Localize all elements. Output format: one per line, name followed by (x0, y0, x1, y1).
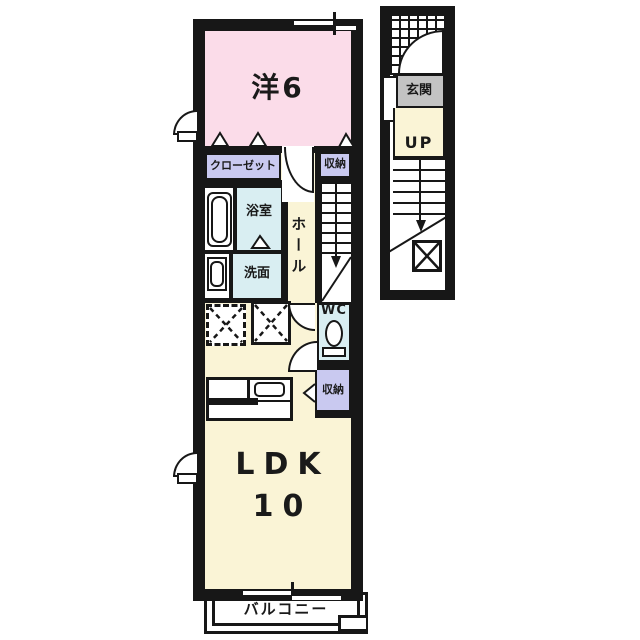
bathroom-label: 浴室 (236, 205, 282, 220)
wc-label: WC (317, 304, 351, 319)
toilet-icon (325, 320, 343, 347)
refrigerator-space-icon (251, 301, 291, 345)
window-bottom-pane-left (243, 591, 292, 595)
entrance: 玄関 (393, 74, 445, 108)
toilet-base (322, 347, 346, 357)
closet-label: クローゼット (210, 159, 276, 172)
stairs-internal-rail (335, 182, 337, 258)
entrance-label: 玄関 (406, 83, 432, 98)
storage-upper-label: 収納 (324, 157, 346, 170)
storage-upper: 収納 (319, 152, 351, 178)
closet: クローゼット (205, 153, 281, 180)
bathtub-inner (211, 196, 228, 243)
balcony-label: バルコニー (205, 601, 367, 618)
washroom-label: 洗面 (233, 267, 281, 282)
window-bottom-tick (291, 582, 294, 596)
window-swing-sill (177, 131, 198, 142)
kitchen-sink-icon (254, 382, 285, 397)
window-bottom-pane-right (292, 596, 341, 600)
up-label: UP (393, 134, 445, 152)
ldk-label: LDK (205, 448, 351, 483)
washing-machine-space-icon (206, 304, 246, 346)
wall-below-closet (205, 180, 281, 188)
ldk-size-label: 10 (205, 490, 351, 525)
storage-lower: 収納 (315, 368, 351, 412)
kitchen-divider-v (247, 377, 250, 400)
window-swing-sill-2 (177, 473, 198, 484)
kitchen-divider-thin (247, 400, 293, 402)
washbasin-bowl (210, 261, 224, 287)
storage-lower-label: 収納 (322, 383, 344, 396)
wall-below-storage-lower (315, 412, 351, 418)
pipe-space-icon (412, 240, 442, 272)
window-top-tick (333, 12, 336, 35)
stairs-external-rail (419, 158, 421, 220)
wall-stairs-left (315, 180, 322, 302)
window-top-pane-left (294, 21, 335, 25)
room-western-label: 洋6 (205, 72, 351, 104)
window-top-pane-right (334, 26, 356, 30)
floor-plan: バルコニー 洋6 クローゼット 収納 浴室 洗面 ホール WC (0, 0, 640, 640)
hall-label: ホール (289, 216, 306, 279)
